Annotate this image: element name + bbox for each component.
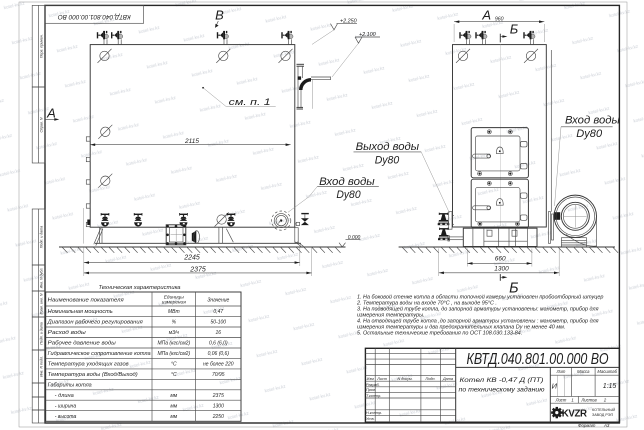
- svg-text:Вход воды: Вход воды: [319, 176, 375, 188]
- svg-text:Н.контр.: Н.контр.: [366, 411, 382, 415]
- svg-text:Формат: Формат: [578, 423, 596, 428]
- svg-text:Значение: Значение: [207, 297, 229, 303]
- svg-text:Наименование показателя: Наименование показателя: [48, 297, 124, 303]
- svg-text:Пров.: Пров.: [366, 388, 376, 392]
- svg-text:Т.контр.: Т.контр.: [366, 394, 381, 398]
- svg-text:И: И: [552, 382, 558, 391]
- svg-text:Лист: Лист: [555, 397, 567, 402]
- svg-text:Дата: Дата: [442, 377, 453, 381]
- svg-text:3. На подводящей трубе котла,: 3. На подводящей трубе котла, до запорно…: [357, 306, 599, 313]
- svg-text:16: 16: [216, 330, 222, 336]
- svg-text:Габариты котла: Габариты котла: [48, 382, 92, 388]
- svg-text:по техническому заданию: по техническому заданию: [459, 386, 545, 394]
- svg-text:N докум.: N докум.: [397, 377, 412, 381]
- svg-text:Взам. инв. N: Взам. инв. N: [40, 293, 44, 314]
- svg-text:1300: 1300: [494, 266, 509, 273]
- svg-text:А3: А3: [603, 423, 610, 428]
- svg-text:2115: 2115: [184, 138, 199, 145]
- svg-text:Утв.: Утв.: [366, 417, 375, 421]
- svg-text:Масштаб: Масштаб: [597, 369, 617, 374]
- svg-text:KVZR: KVZR: [562, 408, 587, 419]
- svg-text:мм: мм: [170, 403, 177, 409]
- svg-text:Инв. N дубл.: Инв. N дубл.: [40, 268, 44, 289]
- svg-text:мм: мм: [170, 414, 177, 420]
- svg-text:- высота: - высота: [55, 414, 77, 420]
- svg-text:см. п. 1: см. п. 1: [229, 97, 271, 107]
- svg-text:1300: 1300: [213, 403, 224, 409]
- svg-text:Лист: Лист: [376, 377, 387, 381]
- svg-text:Изм: Изм: [367, 377, 374, 381]
- svg-text:Температура воды (Вход/Выход): Температура воды (Вход/Выход): [48, 372, 138, 378]
- svg-text:Диапазон рабочего регулировани: Диапазон рабочего регулирования: [47, 320, 143, 326]
- svg-text:МВт: МВт: [168, 309, 180, 315]
- svg-text:2375: 2375: [212, 393, 224, 399]
- svg-text:м3/ч: м3/ч: [169, 330, 180, 336]
- svg-text:Разраб.: Разраб.: [366, 383, 380, 387]
- svg-text:Рабочее давление воды: Рабочее давление воды: [48, 341, 116, 347]
- svg-text:Инв. N подл.: Инв. N подл.: [40, 356, 44, 377]
- svg-text:Справ. N: Справ. N: [40, 117, 44, 132]
- svg-text:Листов: Листов: [580, 397, 597, 402]
- svg-text:1:15: 1:15: [603, 383, 617, 390]
- svg-text:мм: мм: [170, 393, 177, 399]
- svg-text:%: %: [172, 320, 177, 326]
- svg-text:не более 220: не более 220: [203, 361, 234, 367]
- svg-text:КОТЕЛЬНЫЙ: КОТЕЛЬНЫЙ: [592, 408, 615, 412]
- svg-text:2250: 2250: [212, 414, 224, 420]
- svg-text:0,06 (0,6): 0,06 (0,6): [208, 351, 230, 357]
- svg-text:1: 1: [571, 397, 573, 402]
- svg-text:МПа (кгс/см2): МПа (кгс/см2): [157, 351, 190, 357]
- svg-text:Расход воды: Расход воды: [48, 330, 86, 336]
- svg-text:А: А: [481, 8, 491, 23]
- svg-text:ЗАВОД РЭП: ЗАВОД РЭП: [592, 413, 613, 417]
- svg-text:Вход воды: Вход воды: [565, 114, 620, 126]
- svg-text:660: 660: [495, 255, 506, 262]
- svg-text:- длина: - длина: [55, 393, 74, 399]
- svg-text:Dy80: Dy80: [576, 128, 602, 140]
- svg-text:70/95: 70/95: [212, 372, 225, 378]
- svg-text:В: В: [215, 7, 224, 22]
- svg-text:- ширина: - ширина: [55, 403, 77, 409]
- svg-text:Выход воды: Выход воды: [356, 141, 420, 153]
- svg-text:2245: 2245: [183, 255, 200, 262]
- svg-text:измерения: измерения: [162, 300, 186, 305]
- svg-text:2375: 2375: [189, 266, 206, 273]
- svg-text:°С: °С: [171, 372, 177, 378]
- svg-text:Dy80: Dy80: [375, 154, 400, 166]
- svg-text:°С: °С: [171, 361, 177, 367]
- svg-text:Б: Б: [510, 22, 519, 37]
- svg-text:1. На боковой стенке котла в: 1. На боковой стенке котла в области топ…: [357, 294, 603, 301]
- svg-text:Масса: Масса: [577, 369, 590, 374]
- svg-text:0,6 (6,0): 0,6 (6,0): [209, 341, 228, 347]
- svg-text:Техническая характеристика: Техническая характеристика: [98, 285, 181, 291]
- svg-text:Подп. и дата: Подп. и дата: [40, 226, 44, 249]
- svg-text:0,47: 0,47: [213, 309, 223, 315]
- svg-text:КВТД.040.801.00.000 ВО: КВТД.040.801.00.000 ВО: [58, 13, 131, 20]
- svg-text:Номинальная мощность: Номинальная мощность: [48, 309, 113, 315]
- svg-text:Подп.: Подп.: [425, 377, 435, 381]
- svg-text:Температура уходящих газов: Температура уходящих газов: [48, 361, 129, 367]
- svg-text:50-100: 50-100: [211, 320, 227, 326]
- svg-text:Перв. примен.: Перв. примен.: [40, 34, 44, 58]
- svg-text:Dy80: Dy80: [336, 189, 360, 201]
- svg-text:Подп. и дата: Подп. и дата: [40, 322, 44, 345]
- svg-text:Лит: Лит: [556, 369, 566, 374]
- svg-text:Котел КВ -0,47 Д (ПТ): Котел КВ -0,47 Д (ПТ): [460, 377, 544, 384]
- svg-text:0.000: 0.000: [348, 235, 361, 241]
- svg-text:Гидравлическое сопротивление к: Гидравлическое сопротивление котла: [48, 351, 151, 357]
- svg-text:КВТД.040.801.00.000 ВО: КВТД.040.801.00.000 ВО: [467, 351, 609, 368]
- svg-text:МПа (кгс/см2): МПа (кгс/см2): [157, 341, 190, 347]
- svg-text:5. Остальные технические треб: 5. Остальные технические требования по О…: [357, 331, 522, 337]
- svg-text:4. На отводящей трубе котла ,: 4. На отводящей трубе котла ,до запорной…: [357, 318, 599, 325]
- svg-text:А: А: [46, 105, 56, 120]
